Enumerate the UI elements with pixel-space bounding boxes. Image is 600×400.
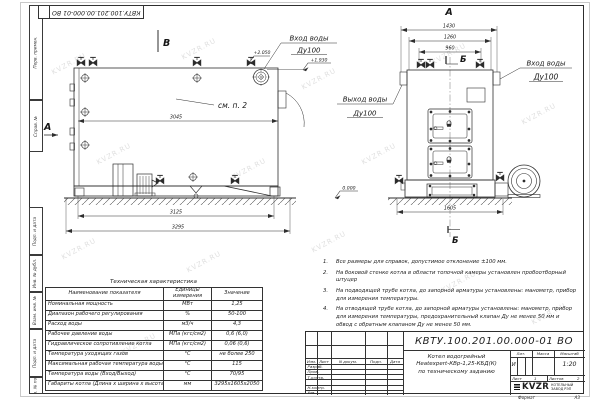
- front-view-dimensions: А 1430 1260 960 Б 1605 Б Вхо: [397, 7, 572, 246]
- note-item: 3. На подводящей трубе котла, до запорно…: [323, 288, 577, 304]
- front-inlet-dn: Ду100: [533, 73, 559, 82]
- valve-icon: [417, 59, 425, 67]
- note-item: 1. Все размеры для справок, допустимое о…: [323, 259, 577, 267]
- valve-icon: [193, 57, 201, 65]
- lifting-eye-icon: [80, 140, 90, 150]
- dim-front-base: 1605: [444, 206, 456, 212]
- valve-icon: [89, 57, 97, 65]
- lifting-eye-icon: [80, 107, 90, 117]
- spec-row: Диапазон рабочего регулирования%50-100: [46, 310, 263, 320]
- dim-front-total: 1430: [443, 24, 455, 30]
- margin-box-inv-dubl: Инв. № дубл.: [29, 255, 43, 292]
- logo-bars-icon: [514, 384, 520, 391]
- inlet-label: Вход воды: [289, 35, 329, 43]
- spec-row: Габариты котла (Длина х ширина х высота)…: [46, 380, 263, 390]
- boiler-drawing: 3045 3125 3295 В А см. п. 2 +2.050 +1.93…: [0, 0, 600, 252]
- valve-icon: [231, 175, 239, 183]
- logo-text: KVZR: [522, 382, 549, 392]
- upper-door: [428, 109, 472, 143]
- view-label-B: В: [163, 38, 170, 49]
- margin-box-podp-data-2: Подп. и дата: [29, 329, 43, 377]
- company-name: КОТЕЛЬНЫЙ ЗАВОД РЭП: [551, 383, 573, 391]
- company-logo: KVZR КОТЕЛЬНЫЙ ЗАВОД РЭП: [514, 381, 583, 393]
- front-view: [388, 57, 540, 237]
- fan-icon: [495, 165, 540, 198]
- dim-front-inner: 960: [445, 46, 454, 52]
- inlet-dn: Ду100: [297, 47, 322, 55]
- margin-box-vzam-inv: Взам. инв. №: [29, 292, 43, 329]
- spec-table: Техническая характеристика Наименование …: [45, 279, 262, 391]
- tb-list: Лист: [317, 359, 331, 364]
- spec-row: Номинальная мощностьМВт1,25: [46, 300, 263, 310]
- format-strip: Формат А3: [518, 395, 584, 400]
- product-name: Котел водогрейный Heatexpert-КВр-1,25-КБ…: [403, 350, 510, 376]
- section-label-B-bottom: Б: [452, 236, 459, 246]
- see-note-label: см. п. 2: [218, 101, 247, 110]
- note-item: 4. На отводящей трубе котла, до запорной…: [323, 306, 577, 330]
- tb-scale-label: Масштаб: [554, 351, 585, 356]
- tb-podp: Подп.: [365, 359, 387, 364]
- spec-table-title: Техническая характеристика: [45, 279, 262, 285]
- doc-number: КВТУ.100.201.00.000-01 ВО: [403, 332, 585, 350]
- tb-role-tkontr: Т.контр.: [308, 375, 325, 380]
- spec-row: Максимальная рабочая температура воды°С1…: [46, 360, 263, 370]
- side-view: [64, 57, 304, 205]
- door-lock-icon: [447, 157, 451, 163]
- inlet-flange-icon: [252, 68, 270, 86]
- view-label-A: А: [444, 7, 452, 18]
- tb-role-prov: Пров.: [308, 369, 319, 374]
- door-lock-icon: [447, 121, 451, 127]
- spec-header-row: Наименование показателя Единицы измерени…: [46, 287, 263, 300]
- dim-side-total: 3295: [172, 225, 184, 231]
- tb-scale-value: 1:20: [554, 361, 585, 368]
- elevation-inlet: +1.930: [310, 58, 327, 64]
- lifting-eye-icon: [80, 73, 90, 83]
- title-block: Изм. Лист N докум. Подп. Дата Разраб. Пр…: [305, 331, 584, 394]
- note-item: 2. На боковой стенке котла в области топ…: [323, 270, 577, 286]
- drawing-sheet: KVZR.RU KVZR.RU KVZR.RU KVZR.RU KVZR.RU …: [0, 0, 600, 400]
- tb-role-utv: Утв.: [308, 390, 316, 395]
- spec-row: Расход водым3/ч4,3: [46, 320, 263, 330]
- dim-side-body: 3045: [170, 115, 182, 121]
- section-label-B-top: Б: [460, 55, 467, 65]
- margin-box-inv-podl: Инв. № подл.: [29, 377, 43, 394]
- format-label: Формат: [518, 395, 535, 400]
- tb-role-razrab: Разраб.: [308, 364, 323, 369]
- tb-role-nkontr: Н.контр.: [308, 385, 325, 390]
- spec-row: Температура уходящих газов°Сне более 250: [46, 350, 263, 360]
- tb-mass-label: Масса: [532, 351, 554, 356]
- valve-icon: [77, 57, 85, 65]
- elevation-top: +2.050: [253, 50, 270, 56]
- front-inlet-label: Вход воды: [526, 60, 566, 68]
- dim-front-mid: 1260: [444, 35, 456, 41]
- tb-lit-label: Лит.: [510, 351, 532, 356]
- tb-izm: Изм.: [306, 359, 317, 364]
- valve-icon: [426, 59, 434, 67]
- lifting-eye-icon: [192, 73, 202, 83]
- lower-door: [428, 146, 472, 178]
- outlet-label: Выход воды: [343, 96, 388, 104]
- lifting-eye-icon: [188, 172, 198, 182]
- elevation-ground: 0.000: [342, 186, 355, 192]
- spec-row: Рабочее давление водыМПа (кгс/см2)0,6 (6…: [46, 330, 263, 340]
- spec-row: Гидравлическое сопротивление котлаМПа (к…: [46, 340, 263, 350]
- tb-ndok: N докум.: [331, 359, 365, 364]
- valve-icon: [395, 175, 403, 183]
- tb-lit-value: И: [510, 362, 517, 368]
- valve-icon: [496, 172, 504, 180]
- dim-side-base: 3125: [170, 210, 182, 216]
- blower-fan: [113, 164, 158, 196]
- spec-row: Температура воды (Вход/Выход)°С70/95: [46, 370, 263, 380]
- valve-icon: [476, 59, 484, 67]
- notes-list: 1. Все размеры для справок, допустимое о…: [323, 259, 577, 333]
- format-value: А3: [574, 395, 580, 400]
- tb-data: Дата: [387, 359, 403, 364]
- outlet-dn: Ду100: [353, 110, 378, 118]
- view-arrow-A: А: [43, 122, 51, 133]
